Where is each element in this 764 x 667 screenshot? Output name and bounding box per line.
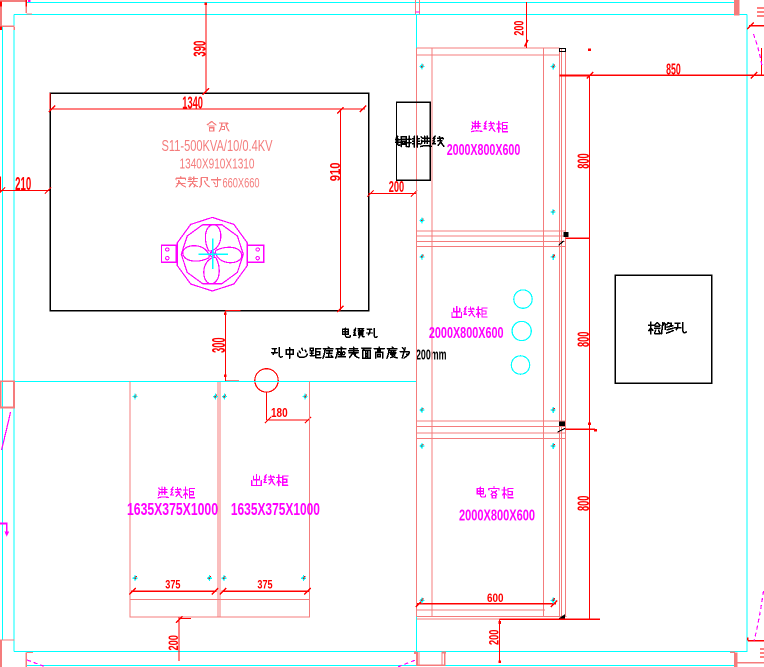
svg-text:660X660: 660X660 (223, 175, 260, 190)
svg-text:1635X375X1000: 1635X375X1000 (231, 499, 320, 519)
svg-text:600: 600 (487, 591, 504, 605)
svg-text:200mm: 200mm (416, 347, 447, 364)
svg-text:800: 800 (574, 496, 593, 511)
svg-text:1635X375X1000: 1635X375X1000 (127, 499, 218, 519)
svg-text:1340X910X1310: 1340X910X1310 (180, 156, 255, 172)
svg-text:2000X800X600: 2000X800X600 (459, 507, 535, 524)
svg-text:S11-500KVA/10/0.4KV: S11-500KVA/10/0.4KV (162, 138, 273, 155)
svg-text:375: 375 (257, 577, 272, 591)
svg-text:1340: 1340 (182, 92, 203, 112)
svg-text:390: 390 (190, 40, 210, 56)
svg-text:180: 180 (271, 406, 288, 420)
svg-text:2000X800X600: 2000X800X600 (429, 325, 504, 342)
svg-text:375: 375 (165, 577, 180, 591)
svg-text:800: 800 (574, 332, 593, 347)
svg-text:200: 200 (389, 179, 404, 196)
svg-text:2000X800X600: 2000X800X600 (447, 142, 521, 159)
svg-text:200: 200 (165, 635, 181, 651)
svg-text:300: 300 (209, 337, 229, 353)
svg-text:910: 910 (328, 163, 344, 182)
svg-text:210: 210 (15, 174, 31, 194)
svg-text:200: 200 (511, 20, 527, 35)
svg-text:800: 800 (574, 153, 593, 168)
svg-text:200: 200 (485, 629, 501, 645)
svg-text:850: 850 (666, 61, 681, 78)
